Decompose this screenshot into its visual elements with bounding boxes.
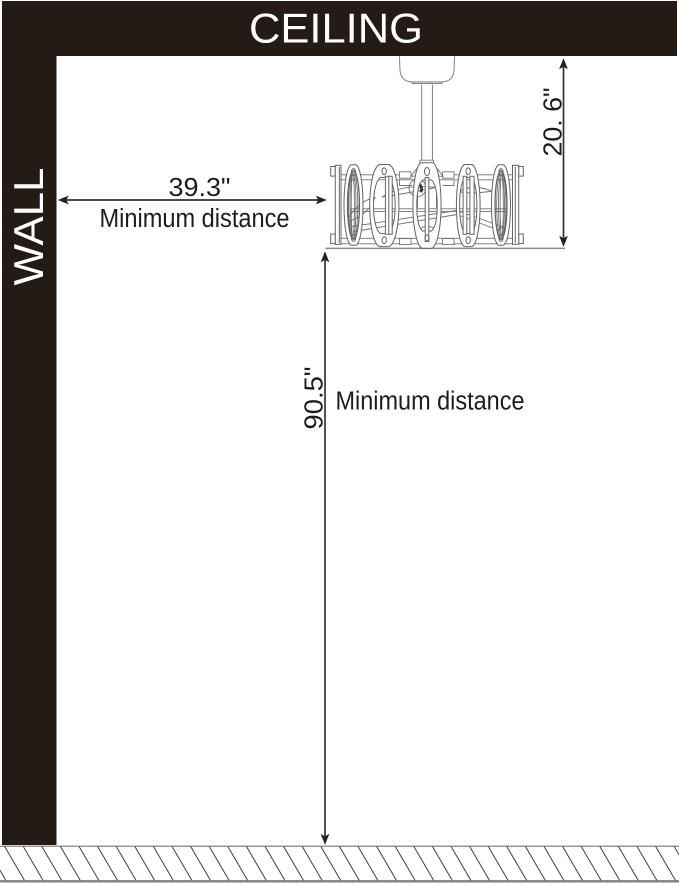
svg-text:20. 6": 20. 6" bbox=[540, 88, 568, 157]
svg-text:Minimum distance: Minimum distance bbox=[100, 205, 290, 233]
svg-text:Minimum distance: Minimum distance bbox=[336, 388, 525, 416]
svg-text:39.3": 39.3" bbox=[169, 174, 231, 202]
svg-text:CEILING: CEILING bbox=[249, 5, 423, 52]
svg-text:90.5": 90.5" bbox=[301, 367, 329, 430]
svg-text:WALL: WALL bbox=[5, 168, 52, 286]
